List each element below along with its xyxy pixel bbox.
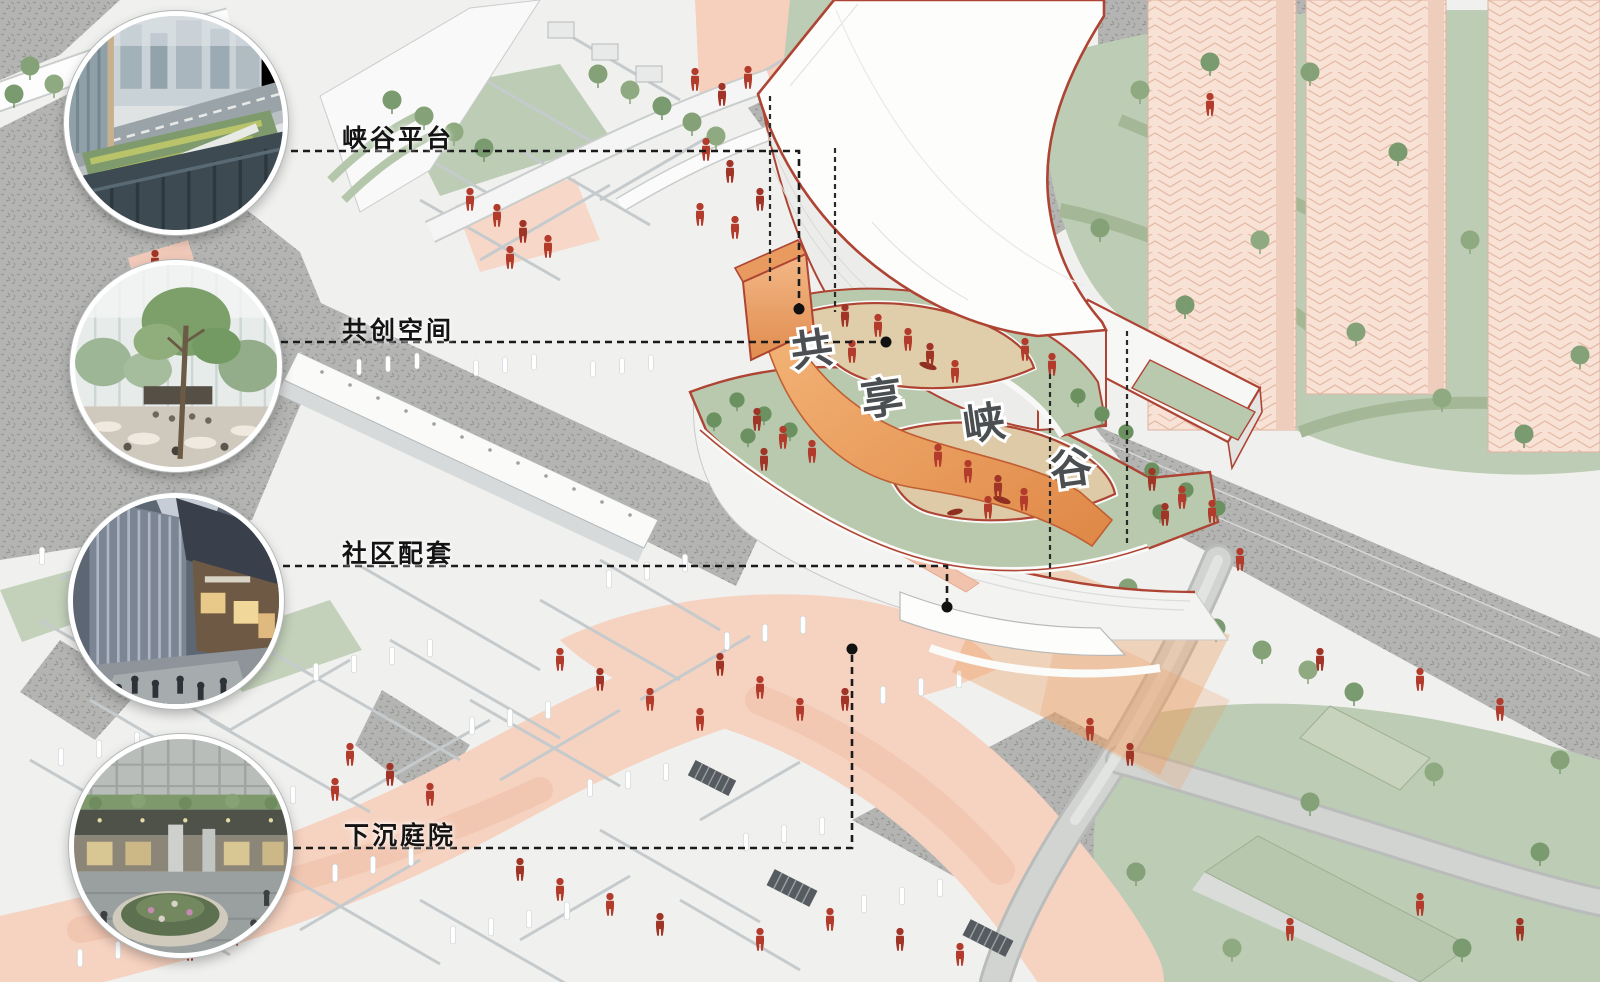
photo-community-retail: [68, 493, 284, 709]
photo-sunken-courtyard: [69, 734, 293, 958]
label-canyon-platform: 峡谷平台: [342, 119, 454, 155]
rooftop-canyon-platform-photo: [69, 16, 283, 230]
title-char-1: 共: [788, 323, 836, 375]
photo-cocreation-space: [70, 260, 282, 472]
label-community-retail: 社区配套: [342, 534, 454, 570]
community-retail-street-photo: [73, 498, 279, 704]
label-sunken-courtyard: 下沉庭院: [344, 816, 456, 852]
photo-canyon-platform: [64, 11, 288, 235]
presentation-board: 共 享 峡 谷: [0, 0, 1600, 982]
title-char-4: 谷: [1047, 442, 1095, 494]
sunken-courtyard-plaza-photo: [74, 739, 288, 953]
indoor-atrium-cocreation-photo: [75, 265, 277, 467]
title-char-3: 峡: [960, 397, 1008, 449]
title-char-2: 享: [858, 372, 906, 424]
label-cocreation-space: 共创空间: [342, 311, 454, 347]
